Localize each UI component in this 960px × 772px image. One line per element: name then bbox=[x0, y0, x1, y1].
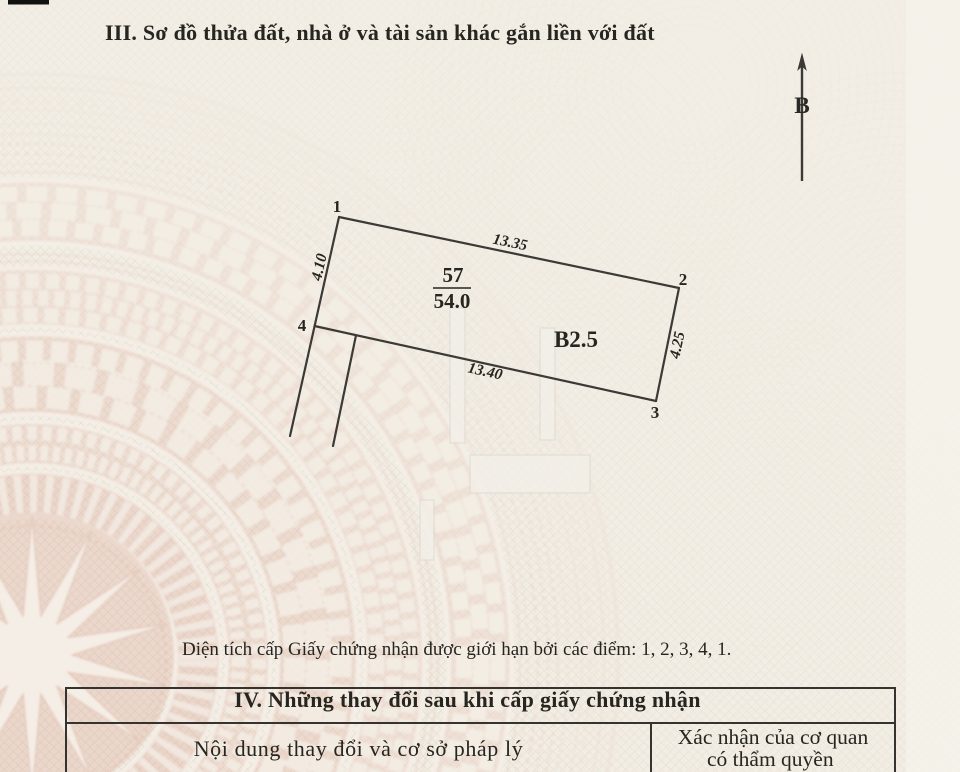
svg-text:4: 4 bbox=[298, 316, 307, 335]
svg-text:13.40: 13.40 bbox=[466, 359, 504, 383]
svg-text:54.0: 54.0 bbox=[434, 289, 471, 313]
svg-text:4.10: 4.10 bbox=[308, 252, 331, 283]
svg-text:B2.5: B2.5 bbox=[554, 327, 598, 352]
svg-text:57: 57 bbox=[443, 263, 464, 287]
svg-text:1: 1 bbox=[333, 197, 342, 216]
svg-text:3: 3 bbox=[651, 403, 660, 422]
svg-text:B: B bbox=[794, 93, 809, 118]
svg-text:2: 2 bbox=[679, 270, 688, 289]
